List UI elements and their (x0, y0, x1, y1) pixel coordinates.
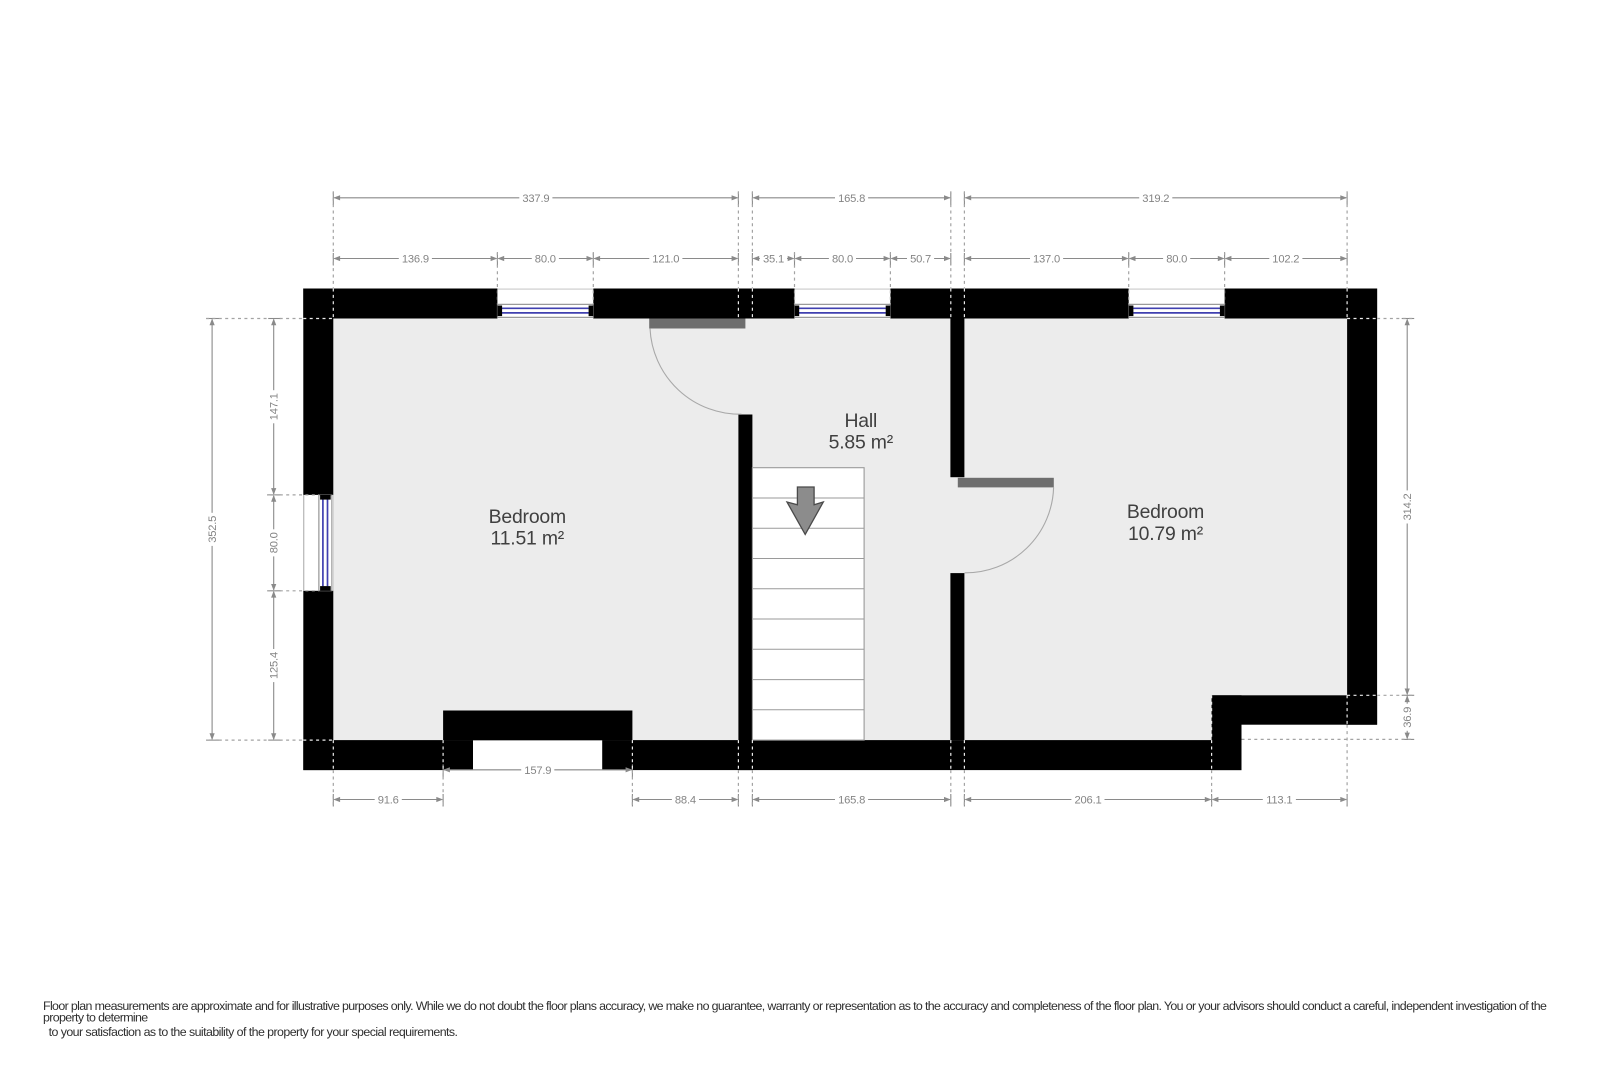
svg-text:157.9: 157.9 (524, 765, 551, 777)
svg-text:Hall: Hall (844, 410, 877, 432)
svg-text:50.7: 50.7 (910, 254, 931, 266)
svg-text:11.51 m²: 11.51 m² (491, 528, 565, 550)
svg-text:10.79 m²: 10.79 m² (1128, 523, 1204, 545)
svg-text:80.0: 80.0 (832, 254, 853, 266)
svg-text:88.4: 88.4 (675, 795, 696, 807)
svg-text:80.0: 80.0 (535, 254, 556, 266)
svg-text:136.9: 136.9 (402, 254, 429, 266)
svg-text:121.0: 121.0 (652, 254, 679, 266)
svg-text:91.6: 91.6 (378, 795, 399, 807)
svg-text:319.2: 319.2 (1142, 193, 1169, 205)
svg-text:165.8: 165.8 (838, 193, 865, 205)
svg-text:80.0: 80.0 (269, 532, 281, 553)
svg-text:125.4: 125.4 (269, 652, 281, 679)
svg-text:137.0: 137.0 (1033, 254, 1060, 266)
svg-text:147.1: 147.1 (269, 393, 281, 420)
svg-text:5.85 m²: 5.85 m² (829, 431, 894, 453)
svg-text:Bedroom: Bedroom (489, 506, 566, 528)
svg-text:165.8: 165.8 (838, 795, 865, 807)
svg-text:property to determine: property to determine (43, 1011, 148, 1025)
svg-text:35.1: 35.1 (763, 254, 784, 266)
svg-text:Floor plan measurements are ap: Floor plan measurements are approximate … (43, 999, 1547, 1013)
svg-text:206.1: 206.1 (1075, 795, 1102, 807)
svg-text:352.5: 352.5 (207, 516, 219, 543)
svg-text:102.2: 102.2 (1272, 254, 1299, 266)
svg-text:36.9: 36.9 (1402, 707, 1414, 728)
svg-text:314.2: 314.2 (1402, 493, 1414, 520)
svg-text:80.0: 80.0 (1166, 254, 1187, 266)
svg-text:337.9: 337.9 (522, 193, 549, 205)
svg-text:113.1: 113.1 (1266, 795, 1292, 807)
svg-text:Bedroom: Bedroom (1127, 501, 1204, 523)
svg-text:to your satisfaction as to the: to your satisfaction as to the suitabili… (49, 1025, 458, 1039)
